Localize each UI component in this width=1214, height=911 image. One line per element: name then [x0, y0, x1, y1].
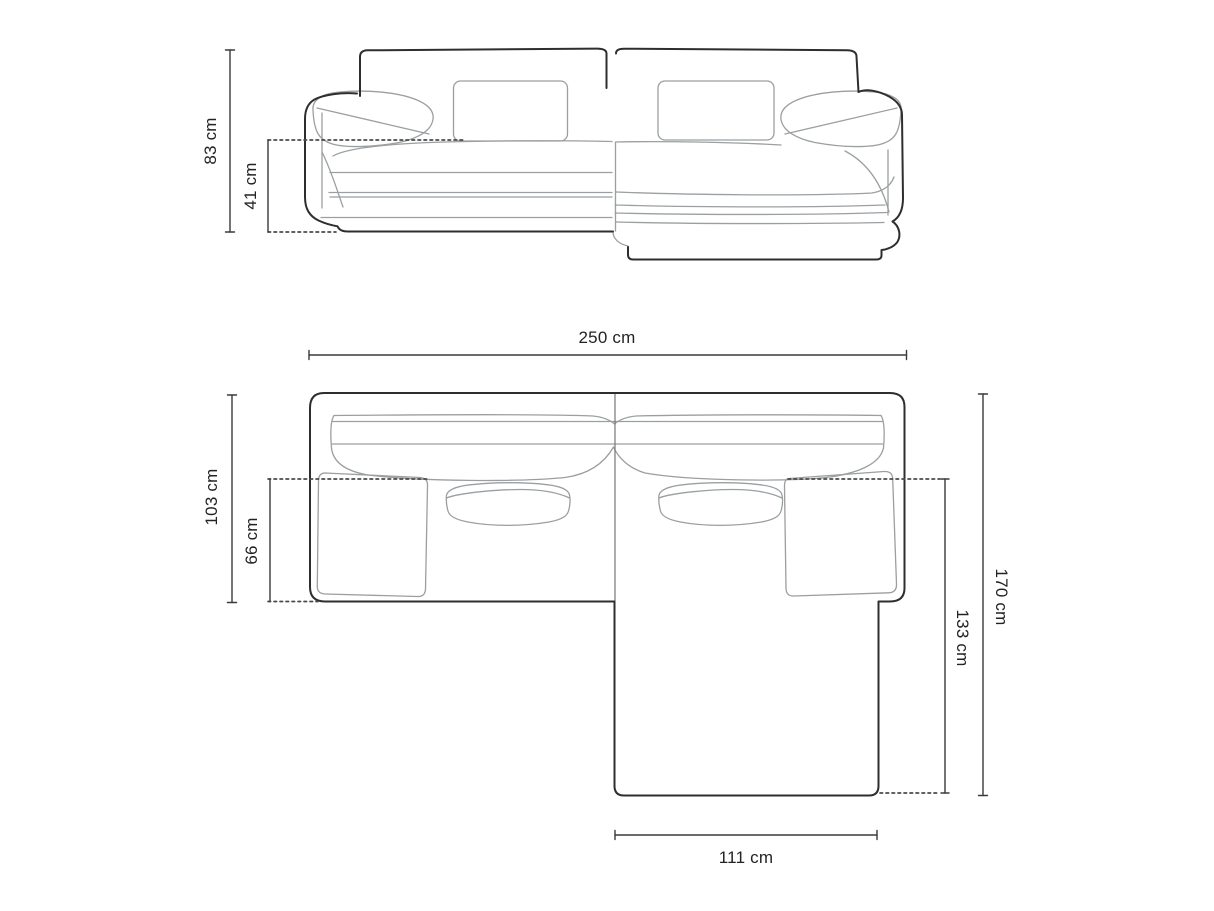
sofa-technical-drawing [0, 0, 1214, 911]
front-seam-lines [313, 81, 901, 246]
dim-label-seat-height: 41 cm [241, 162, 261, 209]
dim-line-chaise-width [615, 831, 877, 840]
dim-line-overall-depth [979, 394, 988, 796]
sofa-dimensions-diagram: 83 cm 41 cm 250 cm 103 cm 66 cm 170 cm 1… [0, 0, 1214, 911]
plan-armrest-pillow-right [784, 471, 896, 596]
dim-line-chaise-depth [941, 479, 949, 793]
dim-label-overall-depth: 170 cm [991, 569, 1011, 626]
plan-armrest-pillow-left [317, 473, 427, 597]
dim-label-seat-depth: 66 cm [242, 517, 262, 564]
front-outline [305, 49, 903, 260]
dim-label-body-depth: 103 cm [202, 469, 222, 526]
back-pillow-left [454, 81, 568, 141]
top-view-drawing [228, 351, 988, 840]
front-dotted-reference-lines [268, 140, 463, 232]
back-pillow-right [658, 81, 774, 140]
dim-label-chaise-width: 111 cm [719, 848, 773, 868]
dim-line-body-depth [228, 395, 237, 603]
armrest-pillow-right [781, 91, 901, 147]
dim-line-overall-height [226, 50, 235, 232]
front-view-drawing [226, 49, 904, 260]
top-dotted-reference-lines [268, 479, 940, 793]
top-outline [310, 393, 905, 796]
dim-label-overall-width: 250 cm [579, 328, 636, 348]
top-seam-lines [317, 415, 896, 597]
dim-label-chaise-depth: 133 cm [952, 610, 972, 667]
armrest-pillow-left [313, 91, 433, 147]
dim-label-overall-height: 83 cm [201, 117, 221, 164]
dim-line-overall-width [309, 351, 907, 360]
